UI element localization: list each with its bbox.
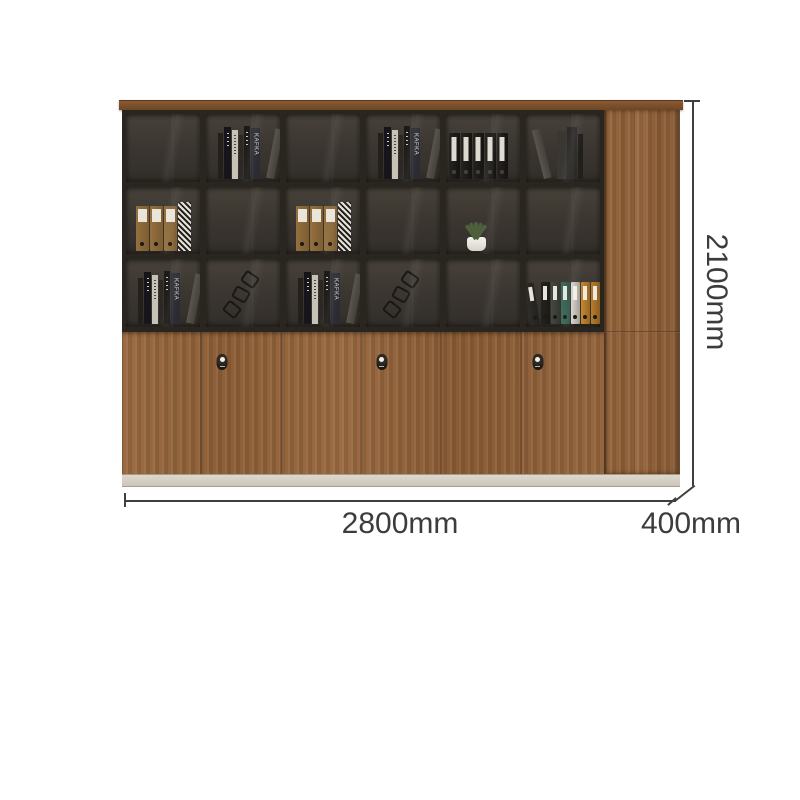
door-seam (441, 332, 444, 474)
shelf-cell-r1c3 (286, 114, 360, 182)
book-spine (244, 126, 250, 179)
book-spine (138, 278, 143, 324)
cabinet-base-plinth (122, 474, 680, 487)
book-spine (384, 127, 391, 179)
door-seam (361, 332, 364, 474)
book-spine-title: KAFKA (252, 133, 260, 155)
ring-binder (324, 206, 337, 251)
shelf-cell-r3c4 (366, 259, 440, 327)
book-spine (159, 280, 163, 324)
side-cabinet-panel (604, 110, 680, 474)
ring-binder (571, 282, 580, 324)
book-spine: KAFKA (411, 128, 420, 179)
shelf-cell-r1c6 (526, 114, 600, 182)
plant-leaves (463, 221, 489, 239)
ring-binder (136, 206, 149, 251)
door-lock (217, 354, 228, 370)
ring-binder (561, 282, 570, 324)
ring-binder (541, 282, 550, 324)
shelf-cell-r3c5 (446, 259, 520, 327)
wire-decor-object (222, 272, 264, 324)
shelf-cell-r1c2: KAFKA (206, 114, 280, 182)
side-panel-seam (606, 331, 680, 333)
wire-frame (391, 285, 411, 304)
door-seam (521, 332, 524, 474)
ring-binder (485, 133, 496, 179)
book-stack: KAFKA (298, 271, 354, 324)
width-dimension-left-tick (124, 493, 126, 507)
ring-binder (461, 133, 472, 179)
patterned-book (338, 202, 351, 251)
side-panel-grain-seam (634, 110, 636, 474)
wire-frame (222, 299, 243, 319)
book-spine (298, 278, 303, 324)
book-stack: KAFKA (218, 126, 274, 179)
leaning-book (186, 273, 200, 324)
book-spine (319, 280, 323, 324)
shelf-cell-r3c3: KAFKA (286, 259, 360, 327)
ring-binder (150, 206, 163, 251)
book-spine (392, 130, 398, 179)
book-spine: KAFKA (251, 128, 260, 179)
brown-binders (136, 202, 191, 251)
ring-binder (449, 133, 460, 179)
book-spine (578, 134, 583, 179)
book-spine-title: KAFKA (172, 278, 180, 300)
black-binders (449, 133, 508, 179)
book-spine (304, 272, 311, 324)
shelf-cell-r3c1: KAFKA (126, 259, 200, 327)
book-spine (152, 275, 158, 324)
shelf-cell-r2c5 (446, 187, 520, 255)
lower-cabinet-doors (122, 332, 604, 474)
product-dimension-image: KAFKAKAFKAKAFKAKAFKA 2800mm 400mm 2100mm (0, 0, 800, 800)
potted-plant (463, 221, 489, 251)
door-lock (532, 354, 543, 370)
book-spine (144, 272, 151, 324)
shelf-cell-r1c5 (446, 114, 520, 182)
book-stack: KAFKA (378, 126, 434, 179)
patterned-book (178, 202, 191, 251)
height-dimension-top-tick (684, 100, 700, 102)
ring-binder (164, 206, 177, 251)
height-dimension-label: 2100mm (700, 222, 732, 362)
brown-binders (296, 202, 351, 251)
door-seam (201, 332, 204, 474)
height-dimension-line (692, 101, 694, 486)
shelf-cell-r2c6 (526, 187, 600, 255)
book-spine (232, 130, 238, 179)
shelf-cell-r2c2 (206, 187, 280, 255)
ring-binder (526, 283, 540, 326)
shelf-cell-r1c1 (126, 114, 200, 182)
colorful-binders (531, 282, 600, 324)
book-spine (218, 133, 223, 179)
book-spine-title: KAFKA (332, 278, 340, 300)
ring-binder (551, 282, 560, 324)
leaning-book (346, 273, 360, 324)
book-spine (567, 127, 577, 179)
book-spine-title: KAFKA (412, 133, 420, 155)
shelf-cell-r2c1 (126, 187, 200, 255)
wire-decor-object (382, 272, 424, 324)
book-spine (324, 271, 330, 324)
ring-binder (310, 206, 323, 251)
leaning-book (531, 128, 551, 178)
leaning-books (544, 127, 583, 179)
glass-display-shelves: KAFKAKAFKAKAFKAKAFKA (122, 110, 604, 332)
book-spine (239, 135, 243, 179)
width-dimension-label: 2800mm (330, 508, 470, 540)
leaning-book (266, 128, 280, 179)
wire-frame (382, 299, 403, 319)
wire-frame (231, 285, 251, 304)
book-spine (312, 275, 318, 324)
ring-binder (473, 133, 484, 179)
ring-binder (296, 206, 309, 251)
book-spine: KAFKA (331, 273, 340, 324)
depth-dimension-label: 400mm (621, 508, 761, 540)
width-dimension-line (125, 500, 676, 502)
wire-frame (240, 270, 261, 290)
book-spine (224, 127, 231, 179)
wire-frame (400, 270, 421, 290)
ring-binder (581, 282, 590, 324)
shelf-cell-r2c3 (286, 187, 360, 255)
book-spine (164, 271, 170, 324)
book-stack: KAFKA (138, 271, 194, 324)
book-spine: KAFKA (171, 273, 180, 324)
book-spine (399, 135, 403, 179)
leaning-book (426, 128, 440, 179)
book-spine (404, 126, 410, 179)
door-lock (376, 354, 387, 370)
book-spine (378, 133, 383, 179)
door-seam (281, 332, 284, 474)
cabinet-top-cap (119, 100, 683, 110)
shelf-cell-r3c2 (206, 259, 280, 327)
ring-binder (591, 282, 600, 324)
shelf-cell-r2c4 (366, 187, 440, 255)
ring-binder (497, 133, 508, 179)
depth-dimension-line (674, 485, 695, 502)
shelf-cell-r3c6 (526, 259, 600, 327)
shelf-cell-r1c4: KAFKA (366, 114, 440, 182)
book-spine (557, 131, 566, 179)
